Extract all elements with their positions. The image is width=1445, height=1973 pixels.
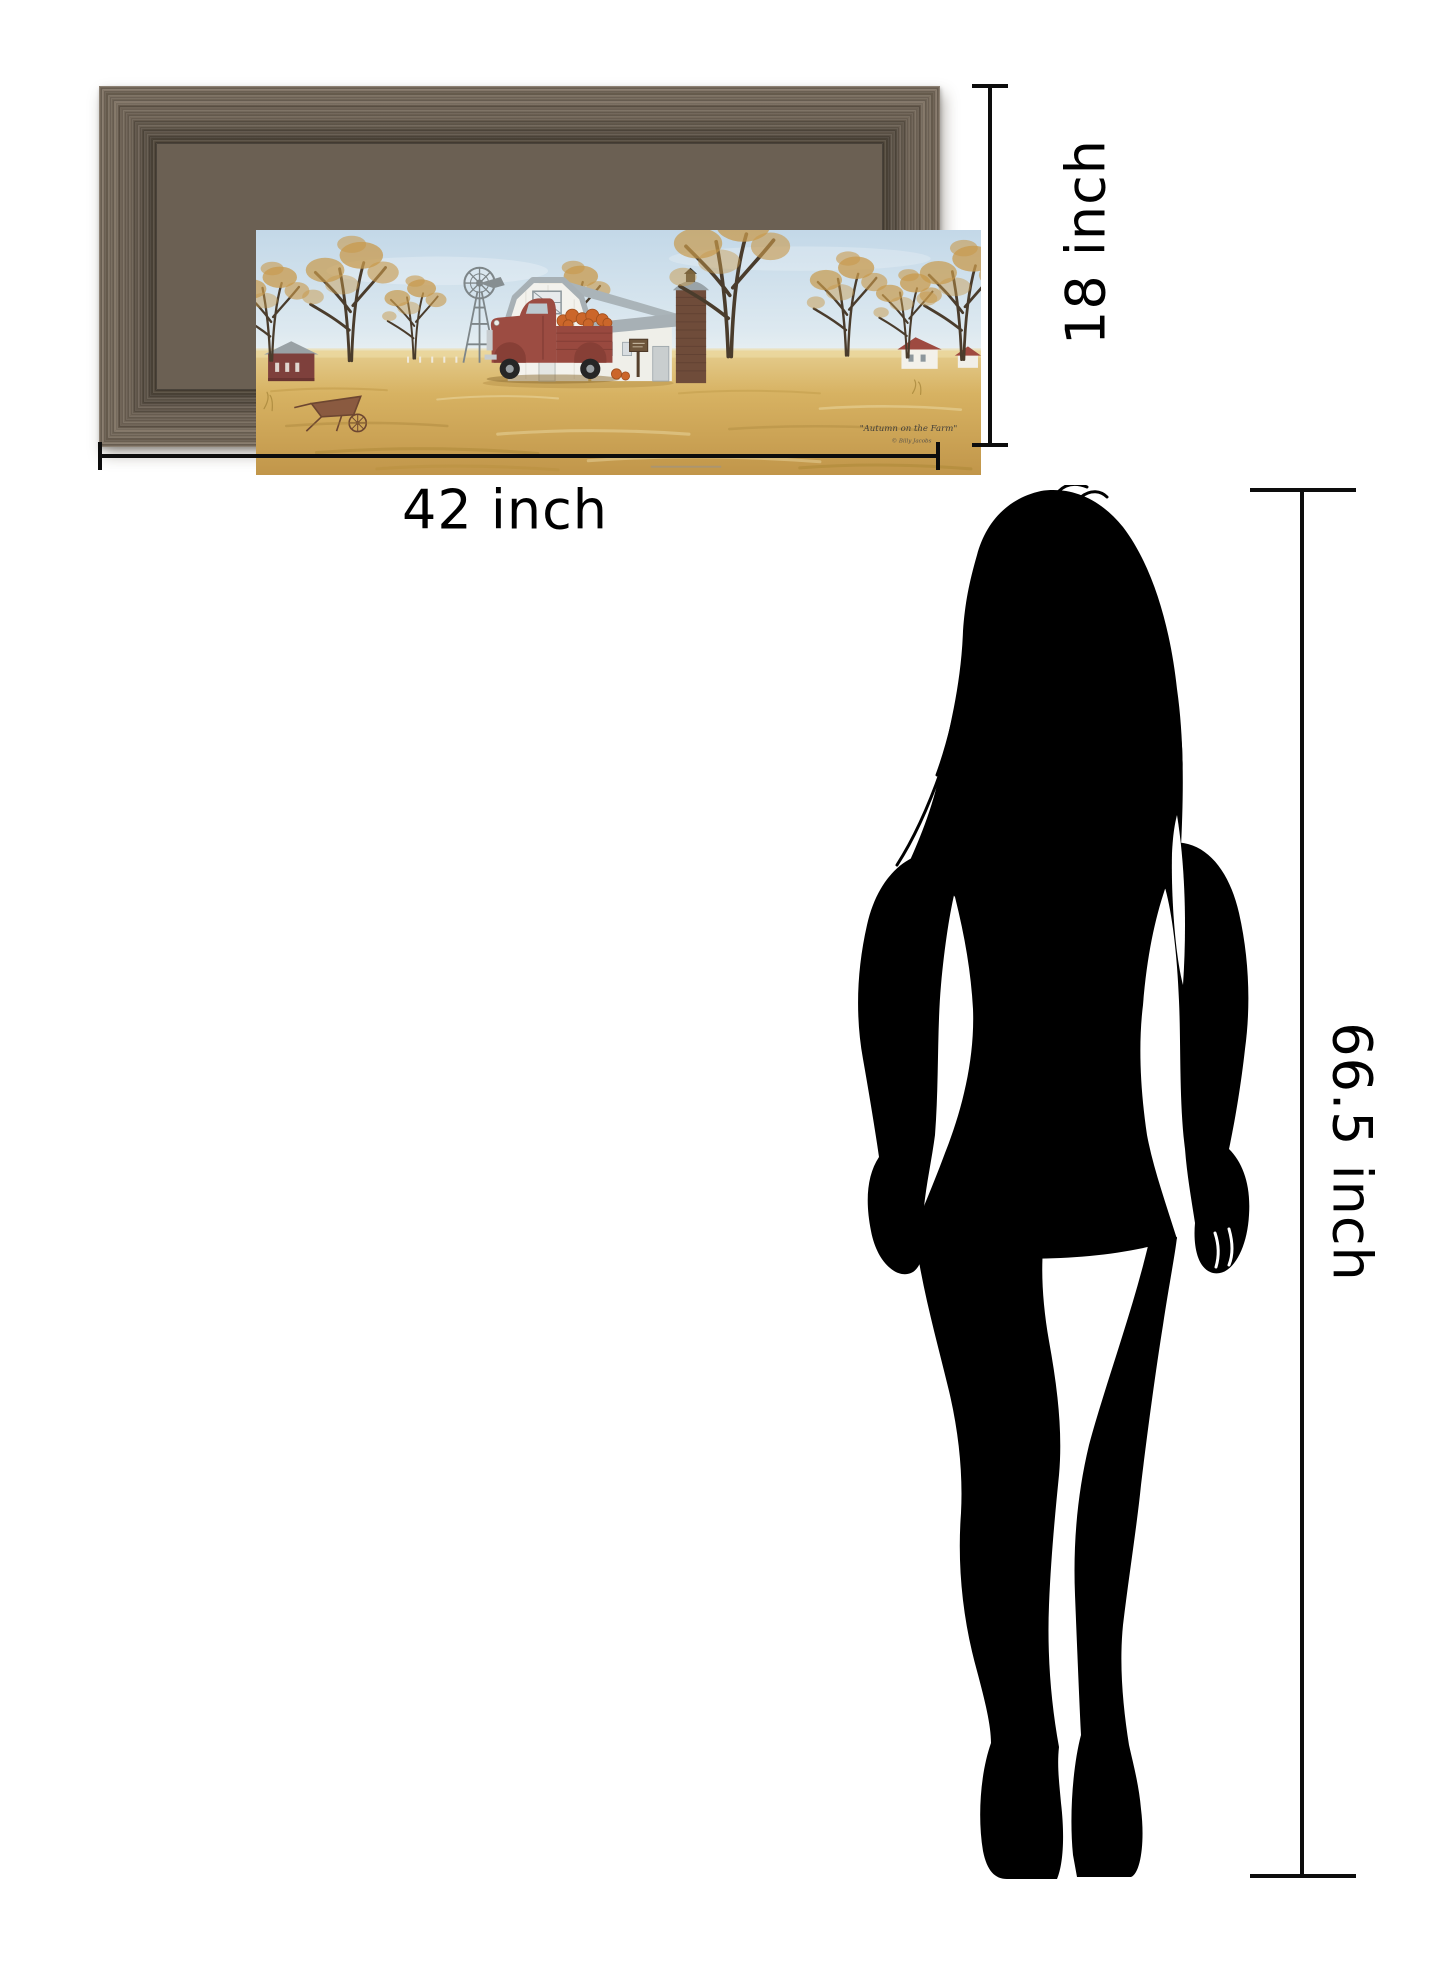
fine-print-line (651, 466, 721, 468)
frame-moulding-top (99, 86, 940, 144)
width-dimension-tick-right (936, 442, 940, 470)
height-dimension-line (988, 86, 992, 447)
silhouette-leg-left (915, 1237, 1063, 1879)
frame-moulding-left (99, 86, 157, 447)
height-dimension-label: 18 inch (1055, 139, 1118, 345)
height-dimension-tick-top (972, 84, 1008, 88)
person-dimension-line (1300, 490, 1304, 1878)
width-dimension-label: 42 inch (402, 479, 608, 542)
width-dimension-tick-left (98, 442, 102, 470)
painting-signature: © Billy Jacobs (892, 437, 932, 444)
silhouette-arm-right (1157, 842, 1249, 1273)
person-silhouette (845, 485, 1260, 1883)
person-dimension-tick-top (1250, 488, 1356, 492)
product-dimension-image: "Autumn on the Farm" © Billy Jacobs 42 i… (0, 0, 1445, 1973)
person-dimension-label: 66.5 inch (1321, 1022, 1384, 1282)
picture-frame: "Autumn on the Farm" © Billy Jacobs (99, 86, 940, 447)
farm-painting: "Autumn on the Farm" © Billy Jacobs (256, 230, 981, 475)
painting-title: "Autumn on the Farm" (860, 424, 958, 434)
width-dimension-line (100, 454, 940, 458)
height-dimension-tick-bottom (972, 443, 1008, 447)
silhouette-leg-right (1071, 1233, 1177, 1877)
person-dimension-tick-bottom (1250, 1874, 1356, 1878)
farm-scene: "Autumn on the Farm" © Billy Jacobs (256, 230, 981, 475)
woman-silhouette (845, 485, 1260, 1883)
